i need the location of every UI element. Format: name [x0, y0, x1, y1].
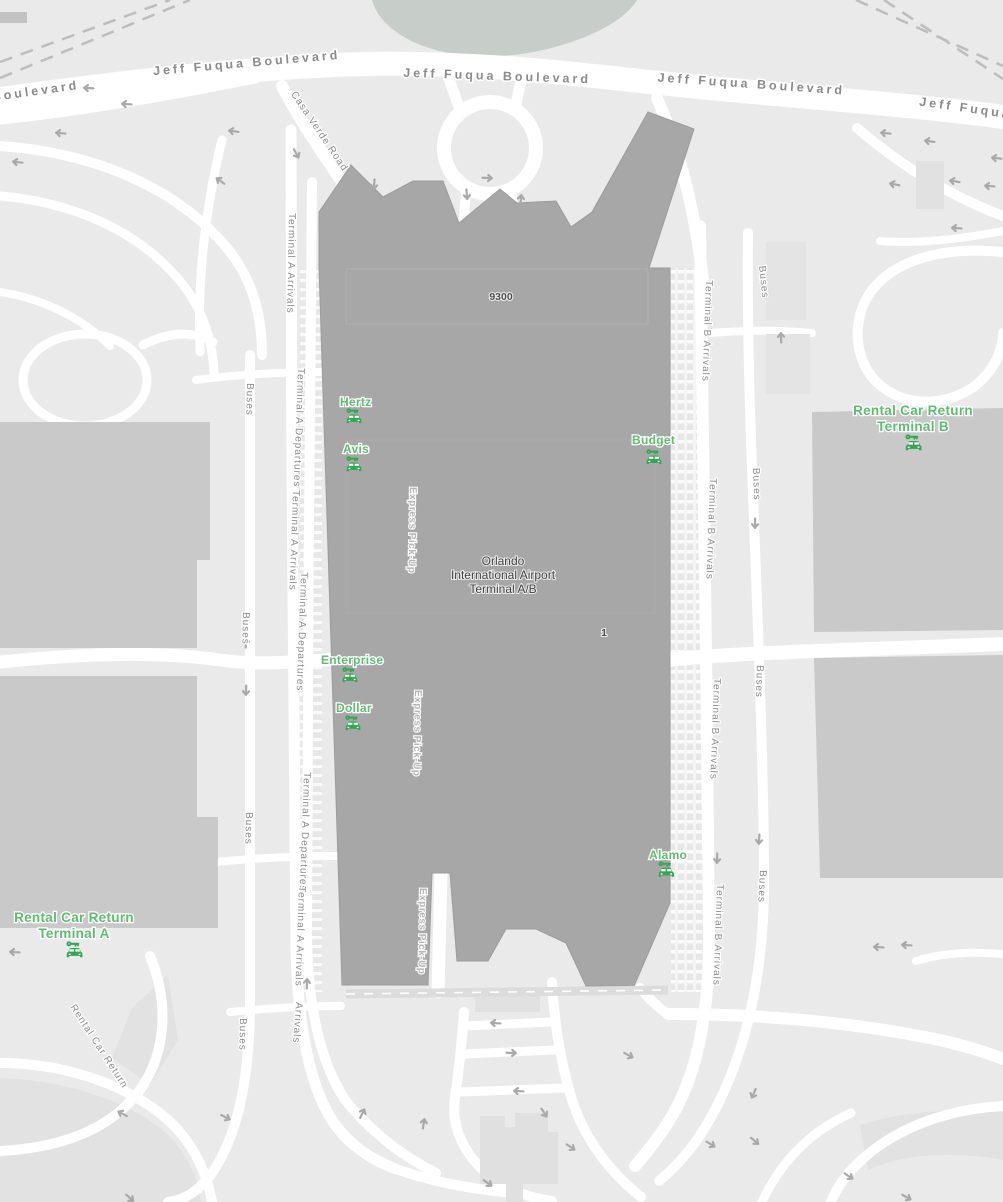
road-label-buses-r4: Buses: [755, 870, 768, 903]
label-express-pickup-2: Express Pick-Up: [410, 690, 423, 777]
terminal-name-line2: International Airport: [451, 568, 556, 582]
road-label-buses-l4: Buses: [236, 1018, 248, 1051]
terminal-number-label: 9300: [489, 291, 513, 303]
parking-garage-a-upper: [0, 422, 210, 648]
parking-garage-a-lower: [0, 676, 218, 928]
poi-label-dollar[interactable]: Dollar: [336, 701, 372, 715]
poi-label-rental-return-a-line1[interactable]: Rental Car Return: [14, 910, 134, 925]
small-structure: [0, 12, 27, 23]
road-label-buses-l2: Buses: [239, 612, 251, 645]
airport-map-canvas[interactable]: Jeff Fuqua Boulevard Jeff Fuqua Boulevar…: [0, 0, 1003, 1202]
road-label-buses-r3: Buses: [753, 665, 765, 698]
poi-label-avis[interactable]: Avis: [343, 442, 369, 456]
parking-garage-b-lower: [814, 655, 1003, 878]
terminal-name-line1: Orlando: [482, 554, 525, 568]
label-express-pickup-3: Express Pick-Up: [415, 888, 428, 975]
poi-label-rental-return-b-line2[interactable]: Terminal B: [877, 419, 949, 434]
poi-label-budget[interactable]: Budget: [632, 433, 675, 447]
label-express-pickup-1: Express Pick-Up: [405, 487, 418, 574]
road-label-buses-l3: Buses: [242, 812, 254, 845]
poi-label-hertz[interactable]: Hertz: [340, 395, 372, 409]
poi-label-enterprise[interactable]: Enterprise: [321, 653, 383, 667]
poi-label-alamo[interactable]: Alamo: [649, 848, 687, 862]
poi-label-rental-return-a-line2[interactable]: Terminal A: [38, 926, 109, 941]
terminal-name-line3: Terminal A/B: [469, 582, 536, 596]
door-number-label: 1: [601, 627, 607, 639]
road-label-buses-l1: Buses: [243, 383, 255, 416]
terminal-south-roadband: [346, 990, 668, 994]
parking-garage-b-upper: [812, 408, 1003, 632]
road-label-ta-arrivals-1: Terminal A Arrivals: [284, 213, 297, 314]
road-label-buses-r2: Buses: [750, 468, 762, 501]
poi-label-rental-return-b-line1[interactable]: Rental Car Return: [853, 403, 973, 418]
terminal-building: [319, 112, 694, 986]
